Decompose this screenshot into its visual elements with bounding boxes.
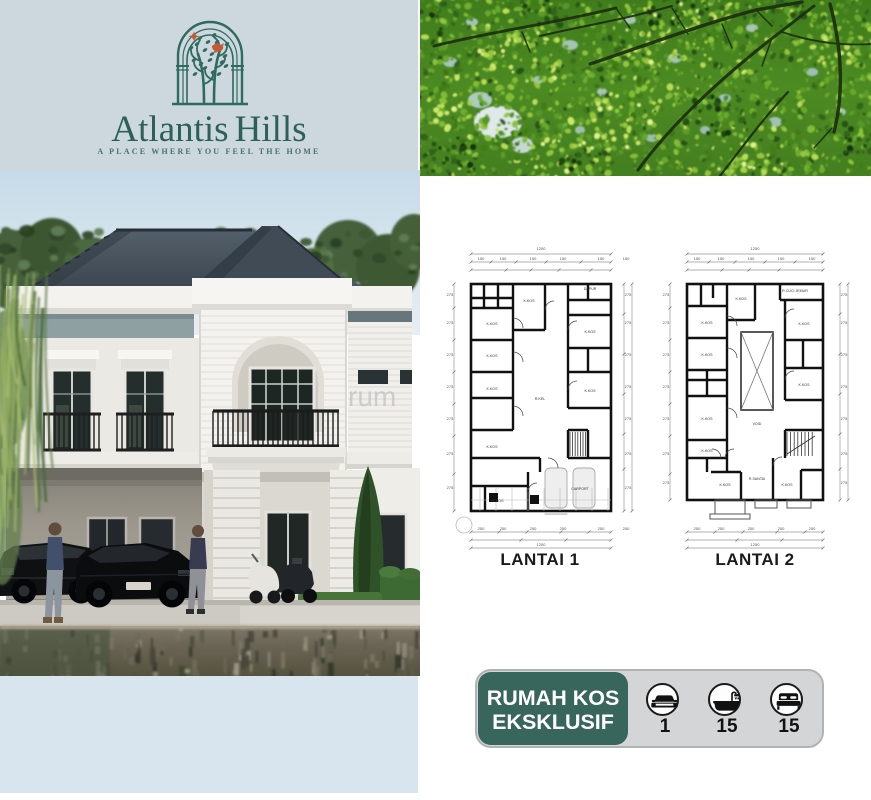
svg-text:LANTAI 1: LANTAI 1 xyxy=(500,550,579,569)
svg-text:LANTAI 2: LANTAI 2 xyxy=(715,550,794,569)
svg-text:250: 250 xyxy=(718,526,725,531)
svg-text:K.KOS: K.KOS xyxy=(524,299,536,303)
svg-text:275: 275 xyxy=(447,451,454,456)
svg-text:1250: 1250 xyxy=(751,542,761,547)
svg-text:275: 275 xyxy=(447,320,454,325)
svg-text:275: 275 xyxy=(663,320,670,325)
svg-text:275: 275 xyxy=(447,485,454,490)
svg-text:275: 275 xyxy=(841,292,848,297)
svg-text:K.KOS: K.KOS xyxy=(702,417,714,421)
svg-text:K.KOS: K.KOS xyxy=(720,483,732,487)
svg-text:VOID: VOID xyxy=(753,422,762,426)
svg-text:275: 275 xyxy=(625,451,632,456)
svg-text:150: 150 xyxy=(598,256,605,261)
svg-text:150: 150 xyxy=(718,256,725,261)
svg-text:250: 250 xyxy=(748,526,755,531)
svg-text:250: 250 xyxy=(560,526,567,531)
svg-text:K.KOS: K.KOS xyxy=(493,499,505,503)
svg-text:rum: rum xyxy=(348,381,396,412)
svg-text:K.KOS: K.KOS xyxy=(487,445,499,449)
svg-text:R.KEL: R.KEL xyxy=(535,397,545,401)
svg-text:150: 150 xyxy=(530,256,537,261)
svg-text:250: 250 xyxy=(623,526,630,531)
svg-text:275: 275 xyxy=(841,480,848,485)
svg-text:275: 275 xyxy=(625,416,632,421)
svg-text:250: 250 xyxy=(809,526,816,531)
svg-text:275: 275 xyxy=(841,352,848,357)
svg-text:250: 250 xyxy=(530,526,537,531)
svg-text:K.KOS: K.KOS xyxy=(736,297,748,301)
svg-text:275: 275 xyxy=(625,384,632,389)
svg-text:275: 275 xyxy=(625,292,632,297)
svg-text:K.KOS: K.KOS xyxy=(585,330,597,334)
svg-text:250: 250 xyxy=(694,526,701,531)
svg-text:150: 150 xyxy=(809,256,816,261)
svg-text:DAPUR: DAPUR xyxy=(584,287,597,291)
svg-text:150: 150 xyxy=(694,256,701,261)
svg-text:150: 150 xyxy=(478,256,485,261)
svg-text:250: 250 xyxy=(778,526,785,531)
svg-text:275: 275 xyxy=(447,384,454,389)
svg-text:150: 150 xyxy=(623,256,630,261)
svg-text:275: 275 xyxy=(625,485,632,490)
svg-text:275: 275 xyxy=(625,352,632,357)
svg-text:275: 275 xyxy=(663,480,670,485)
svg-text:150: 150 xyxy=(560,256,567,261)
svg-text:1250: 1250 xyxy=(537,542,547,547)
svg-text:K.KOS: K.KOS xyxy=(585,389,597,393)
svg-text:250: 250 xyxy=(598,526,605,531)
svg-text:275: 275 xyxy=(663,384,670,389)
svg-text:275: 275 xyxy=(663,451,670,456)
svg-text:150: 150 xyxy=(500,256,507,261)
svg-text:250: 250 xyxy=(500,526,507,531)
svg-text:275: 275 xyxy=(663,416,670,421)
svg-text:K.KOS: K.KOS xyxy=(799,383,811,387)
svg-text:K.KOS: K.KOS xyxy=(702,321,714,325)
svg-text:275: 275 xyxy=(841,384,848,389)
svg-text:150: 150 xyxy=(748,256,755,261)
svg-text:K.KOS: K.KOS xyxy=(702,353,714,357)
svg-text:275: 275 xyxy=(841,416,848,421)
svg-text:275: 275 xyxy=(663,292,670,297)
svg-text:R.CUCI JEMUR: R.CUCI JEMUR xyxy=(782,289,808,293)
svg-text:K.KOS: K.KOS xyxy=(782,483,794,487)
svg-text:CARPORT: CARPORT xyxy=(571,487,589,491)
svg-text:K.KOS: K.KOS xyxy=(487,322,499,326)
svg-text:275: 275 xyxy=(663,352,670,357)
svg-text:K.KOS: K.KOS xyxy=(487,354,499,358)
svg-text:275: 275 xyxy=(625,320,632,325)
svg-text:K.KOS: K.KOS xyxy=(702,449,714,453)
svg-text:275: 275 xyxy=(447,416,454,421)
svg-text:150: 150 xyxy=(778,256,785,261)
svg-text:275: 275 xyxy=(447,352,454,357)
svg-text:1250: 1250 xyxy=(537,246,547,251)
svg-text:R.SANTAI: R.SANTAI xyxy=(749,477,765,481)
svg-text:1250: 1250 xyxy=(751,246,761,251)
svg-text:275: 275 xyxy=(841,320,848,325)
svg-text:K.KOS: K.KOS xyxy=(487,387,499,391)
svg-text:275: 275 xyxy=(841,451,848,456)
svg-text:K.KOS: K.KOS xyxy=(799,322,811,326)
svg-text:250: 250 xyxy=(478,526,485,531)
svg-text:275: 275 xyxy=(447,292,454,297)
